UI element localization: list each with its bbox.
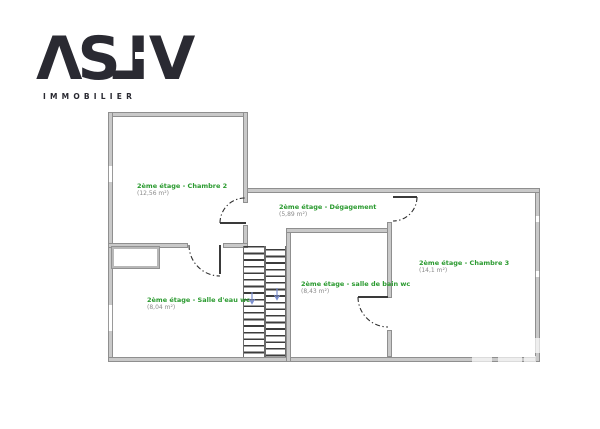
door-leaf-salle-de-bain <box>358 296 388 298</box>
room-name: 2ème étage - Chambre 2 <box>137 182 227 190</box>
room-area: (14,1 m²) <box>419 267 509 274</box>
closet-box <box>112 247 159 268</box>
wall-chambre3-left-lower <box>387 330 392 357</box>
logo-letter-v: V <box>149 30 190 88</box>
logo-letter-l: L <box>116 30 149 88</box>
room-area: (8,43 m²) <box>301 288 410 295</box>
watermark-patch <box>472 356 492 363</box>
floorplan-page: Λ S L V IMMOBILIER <box>0 0 600 429</box>
door-arc-chambre2 <box>220 198 245 223</box>
room-label-chambre-3: 2ème étage - Chambre 3 (14,1 m²) <box>419 259 509 274</box>
room-area: (5,89 m²) <box>279 211 376 218</box>
logo-wordmark: Λ S L V <box>36 30 190 88</box>
wall-chambre2-top <box>108 112 248 117</box>
room-area: (12,56 m²) <box>137 190 227 197</box>
room-name: 2ème étage - Salle d'eau wc <box>147 296 250 304</box>
door-leaf-chambre2 <box>220 222 246 224</box>
room-label-degagement: 2ème étage - Dégagement (5,89 m²) <box>279 203 376 218</box>
wall-bain-top <box>286 228 392 233</box>
aslv-logo: Λ S L V IMMOBILIER <box>36 30 190 101</box>
room-label-salle-de-bain-wc: 2ème étage - salle de bain wc (8,43 m²) <box>301 280 410 295</box>
room-name: 2ème étage - salle de bain wc <box>301 280 410 288</box>
staircase-right-column <box>265 246 286 357</box>
window-left-lower <box>108 305 113 331</box>
door-leaf-chambre3 <box>393 196 417 198</box>
room-name: 2ème étage - Dégagement <box>279 203 376 211</box>
room-area: (8,04 m²) <box>147 304 250 311</box>
watermark-patch <box>498 355 522 364</box>
logo-l-break <box>135 52 147 59</box>
room-label-chambre-2: 2ème étage - Chambre 2 (12,56 m²) <box>137 182 227 197</box>
wall-chambre2-right-upper <box>243 112 248 203</box>
window-left-upper <box>108 166 113 182</box>
room-label-salle-deau-wc: 2ème étage - Salle d'eau wc (8,04 m²) <box>147 296 250 311</box>
logo-letter-s: S <box>77 30 115 88</box>
wall-degagement-top <box>243 188 540 193</box>
door-arc-chambre3 <box>393 197 417 221</box>
logo-letter-a: Λ <box>36 30 77 88</box>
door-arc-salle-deau <box>189 245 220 276</box>
room-name: 2ème étage - Chambre 3 <box>419 259 509 267</box>
watermark-patch <box>535 338 541 353</box>
door-arc-salle-de-bain <box>358 297 388 327</box>
window-right-upper <box>535 216 540 222</box>
watermark-patch <box>524 356 536 364</box>
door-leaf-salle-deau <box>219 245 221 274</box>
window-right-lower <box>535 271 540 277</box>
wall-stairs-right <box>286 228 291 362</box>
